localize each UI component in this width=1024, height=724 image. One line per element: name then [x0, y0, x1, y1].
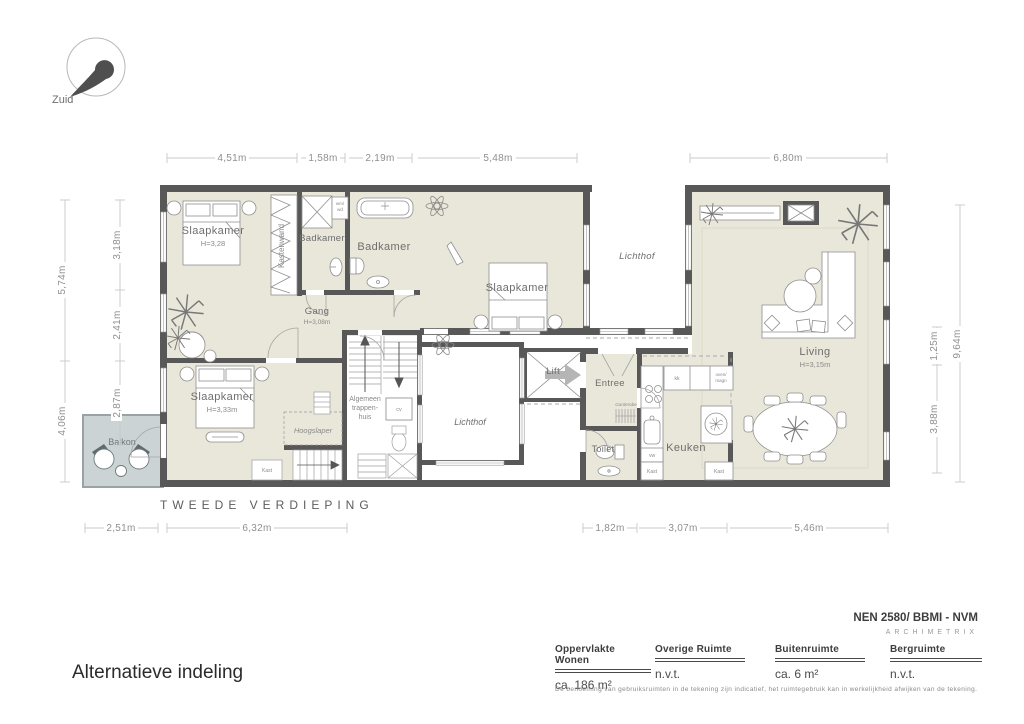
label-wm-wd-1: wm/ — [336, 201, 345, 206]
room-height-slaapkamer-3: H=3,33m — [207, 405, 238, 414]
legend-rule — [775, 658, 865, 662]
label-wm-wd-2: wd — [337, 207, 343, 212]
room-label-slaapkamer-1: Slaapkamer — [182, 225, 245, 237]
room-label-lift: Lift — [546, 366, 560, 377]
dim-right-outer-1: 9,64m — [952, 329, 963, 358]
room-label-gang: Gang — [305, 306, 329, 317]
room-label-keuken: Keuken — [666, 442, 706, 454]
dim-top-1: 4,51m — [217, 153, 246, 164]
room-label-badkamer-klein: Badkamer — [299, 233, 345, 244]
page-title: Alternatieve indeling — [72, 662, 243, 684]
nen-standard-label: NEN 2580/ BBMI - NVM — [853, 612, 978, 624]
room-height-living: H=3,15m — [800, 360, 831, 369]
room-label-trappenhuis-2: trappen- — [352, 405, 379, 412]
legend-col-bergruimte: Bergruimte n.v.t. — [890, 644, 982, 681]
room-label-hoogslaper: Hoogslaper — [294, 426, 333, 435]
room-label-lichthof-boven: Lichthof — [619, 251, 656, 262]
room-label-slaapkamer-3: Slaapkamer — [191, 391, 254, 403]
label-oven-magn-1: oven/ — [715, 372, 727, 377]
dim-bottom-5: 5,46m — [794, 523, 823, 534]
dim-bottom-2: 6,32m — [242, 523, 271, 534]
dim-bottom-1: 2,51m — [106, 523, 135, 534]
room-label-toilet: Toilet — [592, 444, 615, 454]
label-vw: vw — [649, 453, 656, 459]
room-label-entree: Entree — [595, 378, 625, 389]
dim-left-outer-1: 5,74m — [57, 265, 68, 294]
label-kast-1: Kast — [262, 468, 273, 474]
room-label-slaapkamer-2: Slaapkamer — [486, 282, 549, 294]
dim-top-4: 5,48m — [483, 153, 512, 164]
legend-col-header: Oppervlakte Wonen — [555, 644, 651, 666]
legend-col-overige-ruimte: Overige Ruimte n.v.t. — [655, 644, 745, 681]
brand-label: ARCHIMETRIX — [886, 629, 978, 636]
compass-label: Zuid — [52, 94, 73, 106]
room-label-garderobe: Garderobe — [615, 402, 637, 407]
label-oven-magn-2: magn — [715, 378, 727, 383]
legend-rule — [655, 658, 745, 662]
label-cv: cv — [396, 407, 402, 413]
dim-right-inner-2: 3,88m — [929, 404, 940, 433]
disclaimer-text: De benoeming van gebruiksruimten in de t… — [555, 686, 1000, 693]
dim-left-inner-3: 2,87m — [112, 388, 123, 417]
dim-left-inner-2: 2,41m — [112, 310, 123, 339]
label-kast-2: Kast — [647, 469, 658, 475]
room-height-gang: H=3,08m — [304, 319, 331, 326]
dim-bottom-4: 3,07m — [668, 523, 697, 534]
dim-right-inner-1: 1,25m — [929, 331, 940, 360]
dim-left-inner-1: 3,18m — [112, 230, 123, 259]
dim-bottom-3: 1,82m — [595, 523, 624, 534]
label-kast-3: Kast — [714, 469, 725, 475]
legend-col-header: Bergruimte — [890, 644, 982, 655]
compass-icon: Zuid — [52, 38, 125, 106]
legend-rule — [555, 669, 651, 673]
legend-col-value: ca. 6 m² — [775, 667, 865, 681]
room-label-badkamer-groot: Badkamer — [357, 241, 410, 253]
floor-title: TWEEDE VERDIEPING — [160, 498, 374, 512]
label-kk: kk — [675, 376, 681, 382]
legend-rule — [890, 658, 982, 662]
floor-plan-drawing: Zuid — [0, 0, 1024, 560]
room-height-slaapkamer-1: H=3,28 — [201, 239, 225, 248]
room-label-lichthof-onder: Lichthof — [454, 417, 487, 427]
floorplan-page: Zuid — [0, 0, 1024, 724]
room-label-trappenhuis-1: Algemeen — [349, 396, 381, 403]
legend-col-header: Overige Ruimte — [655, 644, 745, 655]
legend-col-buitenruimte: Buitenruimte ca. 6 m² — [775, 644, 865, 681]
room-label-living: Living — [799, 346, 830, 358]
dim-top-5: 6,80m — [773, 153, 802, 164]
room-label-balkon: Balkon — [108, 437, 136, 447]
legend-col-header: Buitenruimte — [775, 644, 865, 655]
legend-col-oppervlakte-wonen: Oppervlakte Wonen ca. 186 m² — [555, 644, 651, 692]
dim-left-outer-2: 4,06m — [57, 406, 68, 435]
dim-top-3: 2,19m — [365, 153, 394, 164]
room-label-trappenhuis-3: huis — [359, 414, 372, 421]
legend-col-value: n.v.t. — [890, 667, 982, 681]
legend-col-value: n.v.t. — [655, 667, 745, 681]
room-label-kastenwand: Kastenwand — [277, 224, 286, 268]
dim-top-2: 1,58m — [308, 153, 337, 164]
